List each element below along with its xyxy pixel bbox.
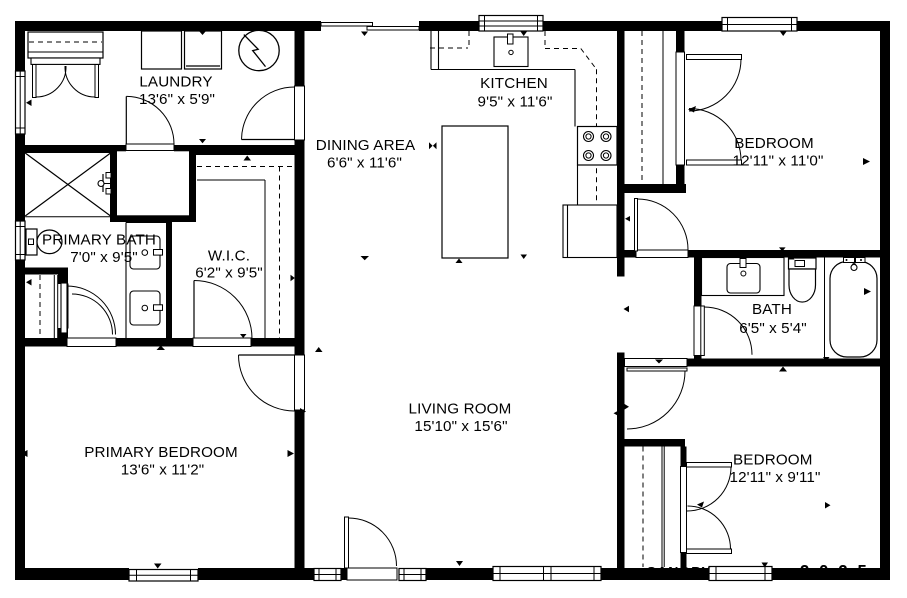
- svg-text:9'5" x 11'6": 9'5" x 11'6": [478, 94, 553, 111]
- svg-text:2025: 2025: [800, 563, 877, 581]
- svg-text:7'0" x 9'5": 7'0" x 9'5": [70, 249, 138, 266]
- svg-text:13'6" x 11'2": 13'6" x 11'2": [121, 462, 204, 479]
- svg-text:12'11" x 9'11": 12'11" x 9'11": [730, 469, 821, 486]
- svg-text:M: M: [698, 573, 705, 582]
- svg-text:13'6" x 5'9": 13'6" x 5'9": [139, 91, 215, 108]
- svg-text:6'5" x 5'4": 6'5" x 5'4": [739, 320, 807, 337]
- svg-text:PRIMARY BATH: PRIMARY BATH: [42, 232, 156, 249]
- svg-text:PRIMARY BEDROOM: PRIMARY BEDROOM: [84, 444, 238, 461]
- svg-text:W.I.C.: W.I.C.: [208, 248, 250, 265]
- svg-text:DINING AREA: DINING AREA: [316, 137, 416, 154]
- svg-text:12'11" x 11'0": 12'11" x 11'0": [733, 153, 824, 170]
- svg-text:6'6" x 11'6": 6'6" x 11'6": [327, 155, 402, 172]
- svg-text:BEDROOM: BEDROOM: [734, 135, 814, 152]
- svg-text:LAUNDRY: LAUNDRY: [139, 74, 212, 91]
- svg-text:LIVING ROOM: LIVING ROOM: [409, 401, 512, 418]
- svg-text:6'2" x 9'5": 6'2" x 9'5": [195, 265, 263, 282]
- svg-text:KITCHEN: KITCHEN: [480, 75, 548, 92]
- svg-text:15'10" x 15'6": 15'10" x 15'6": [414, 418, 507, 435]
- svg-text:BATH: BATH: [752, 301, 792, 318]
- svg-text:BEDROOM: BEDROOM: [733, 452, 813, 469]
